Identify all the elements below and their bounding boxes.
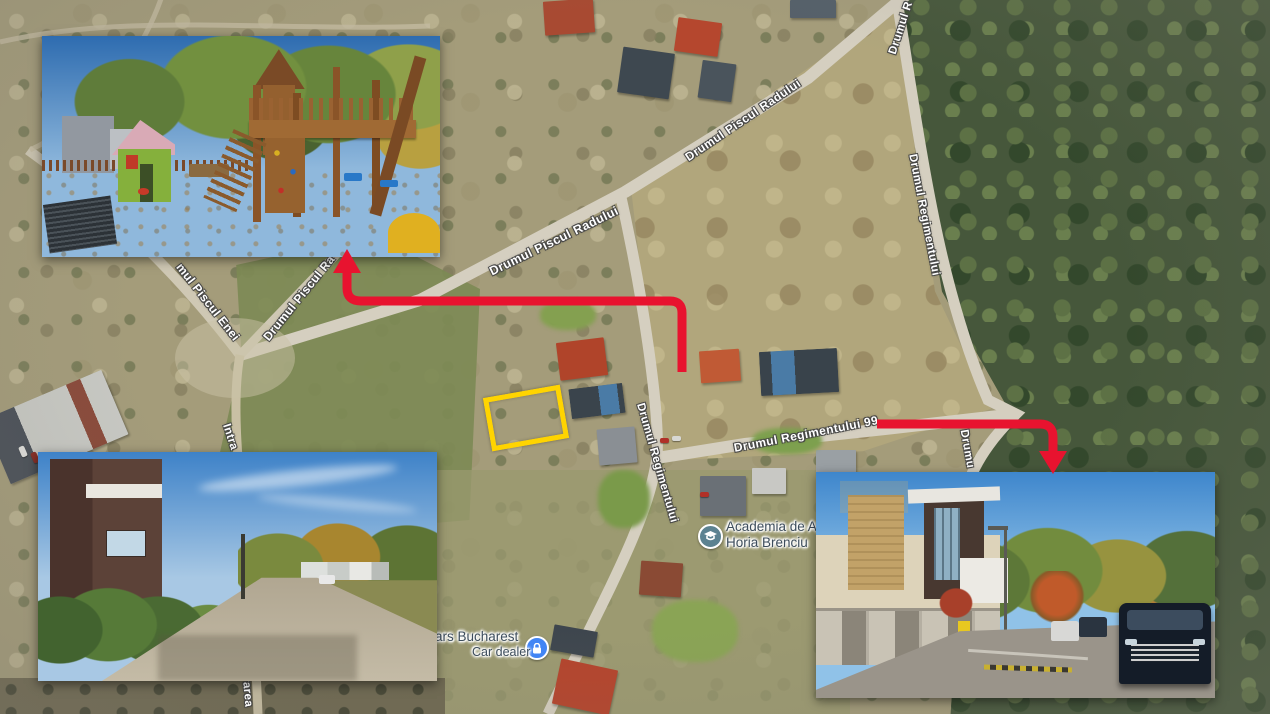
annotated-satellite-map: Drumul Piscul Radului Drumul Piscul Radu… — [0, 0, 1270, 714]
lawn — [652, 600, 738, 662]
lawn — [598, 470, 650, 528]
utility-pole — [241, 534, 245, 598]
building — [752, 468, 786, 494]
playhouse-door — [140, 164, 154, 202]
suv-headlight — [1193, 639, 1205, 645]
building — [816, 450, 856, 474]
lock-icon — [532, 643, 542, 654]
bench — [43, 195, 117, 253]
building — [698, 60, 737, 102]
car — [672, 436, 681, 441]
building — [543, 0, 595, 36]
play-tunnel — [388, 213, 440, 253]
road-shadow — [158, 635, 358, 681]
building — [790, 0, 836, 18]
stone-tower — [848, 495, 904, 590]
distant-houses — [301, 562, 389, 580]
poi-car-dealer-subtitle: Car dealer — [472, 645, 530, 660]
street-lamp-arm — [988, 526, 1008, 529]
lawn — [540, 300, 596, 330]
building — [759, 348, 839, 396]
swing-seat — [380, 180, 398, 188]
building — [597, 426, 638, 465]
suv-grille — [1131, 644, 1199, 662]
building — [674, 17, 722, 57]
building — [556, 337, 608, 381]
car — [700, 492, 709, 497]
parked-car-dark — [1079, 617, 1107, 637]
playhouse-shutter — [126, 155, 138, 168]
play-railing — [249, 98, 416, 120]
house-parapet — [86, 484, 162, 498]
suv-headlight — [1125, 639, 1137, 645]
street-photo-east — [816, 472, 1215, 698]
building — [699, 349, 741, 384]
car — [898, 420, 908, 425]
glass-facade — [934, 508, 960, 580]
graduation-cap-marker[interactable] — [698, 524, 723, 549]
poi-car-dealer-name[interactable]: ars Bucharest — [435, 629, 518, 644]
suv-windshield — [1127, 610, 1203, 630]
house-window — [106, 530, 146, 557]
red-tree — [1027, 571, 1087, 625]
street-photo-west — [38, 452, 437, 681]
building — [617, 47, 675, 100]
climbing-wall — [265, 138, 305, 213]
car — [660, 438, 669, 443]
building — [639, 561, 683, 598]
distant-car — [319, 575, 335, 584]
poi-academia-subtitle: Horia Brenciu — [726, 535, 808, 550]
graduation-cap-icon — [704, 531, 717, 542]
playground-photo — [42, 36, 440, 257]
street-lamp — [1004, 526, 1008, 634]
swing-seat — [344, 173, 362, 181]
parked-car — [1051, 621, 1079, 641]
play-post — [333, 67, 341, 217]
autumn-shrub — [936, 585, 976, 621]
poi-academia-name[interactable]: Academia de A — [726, 519, 817, 534]
